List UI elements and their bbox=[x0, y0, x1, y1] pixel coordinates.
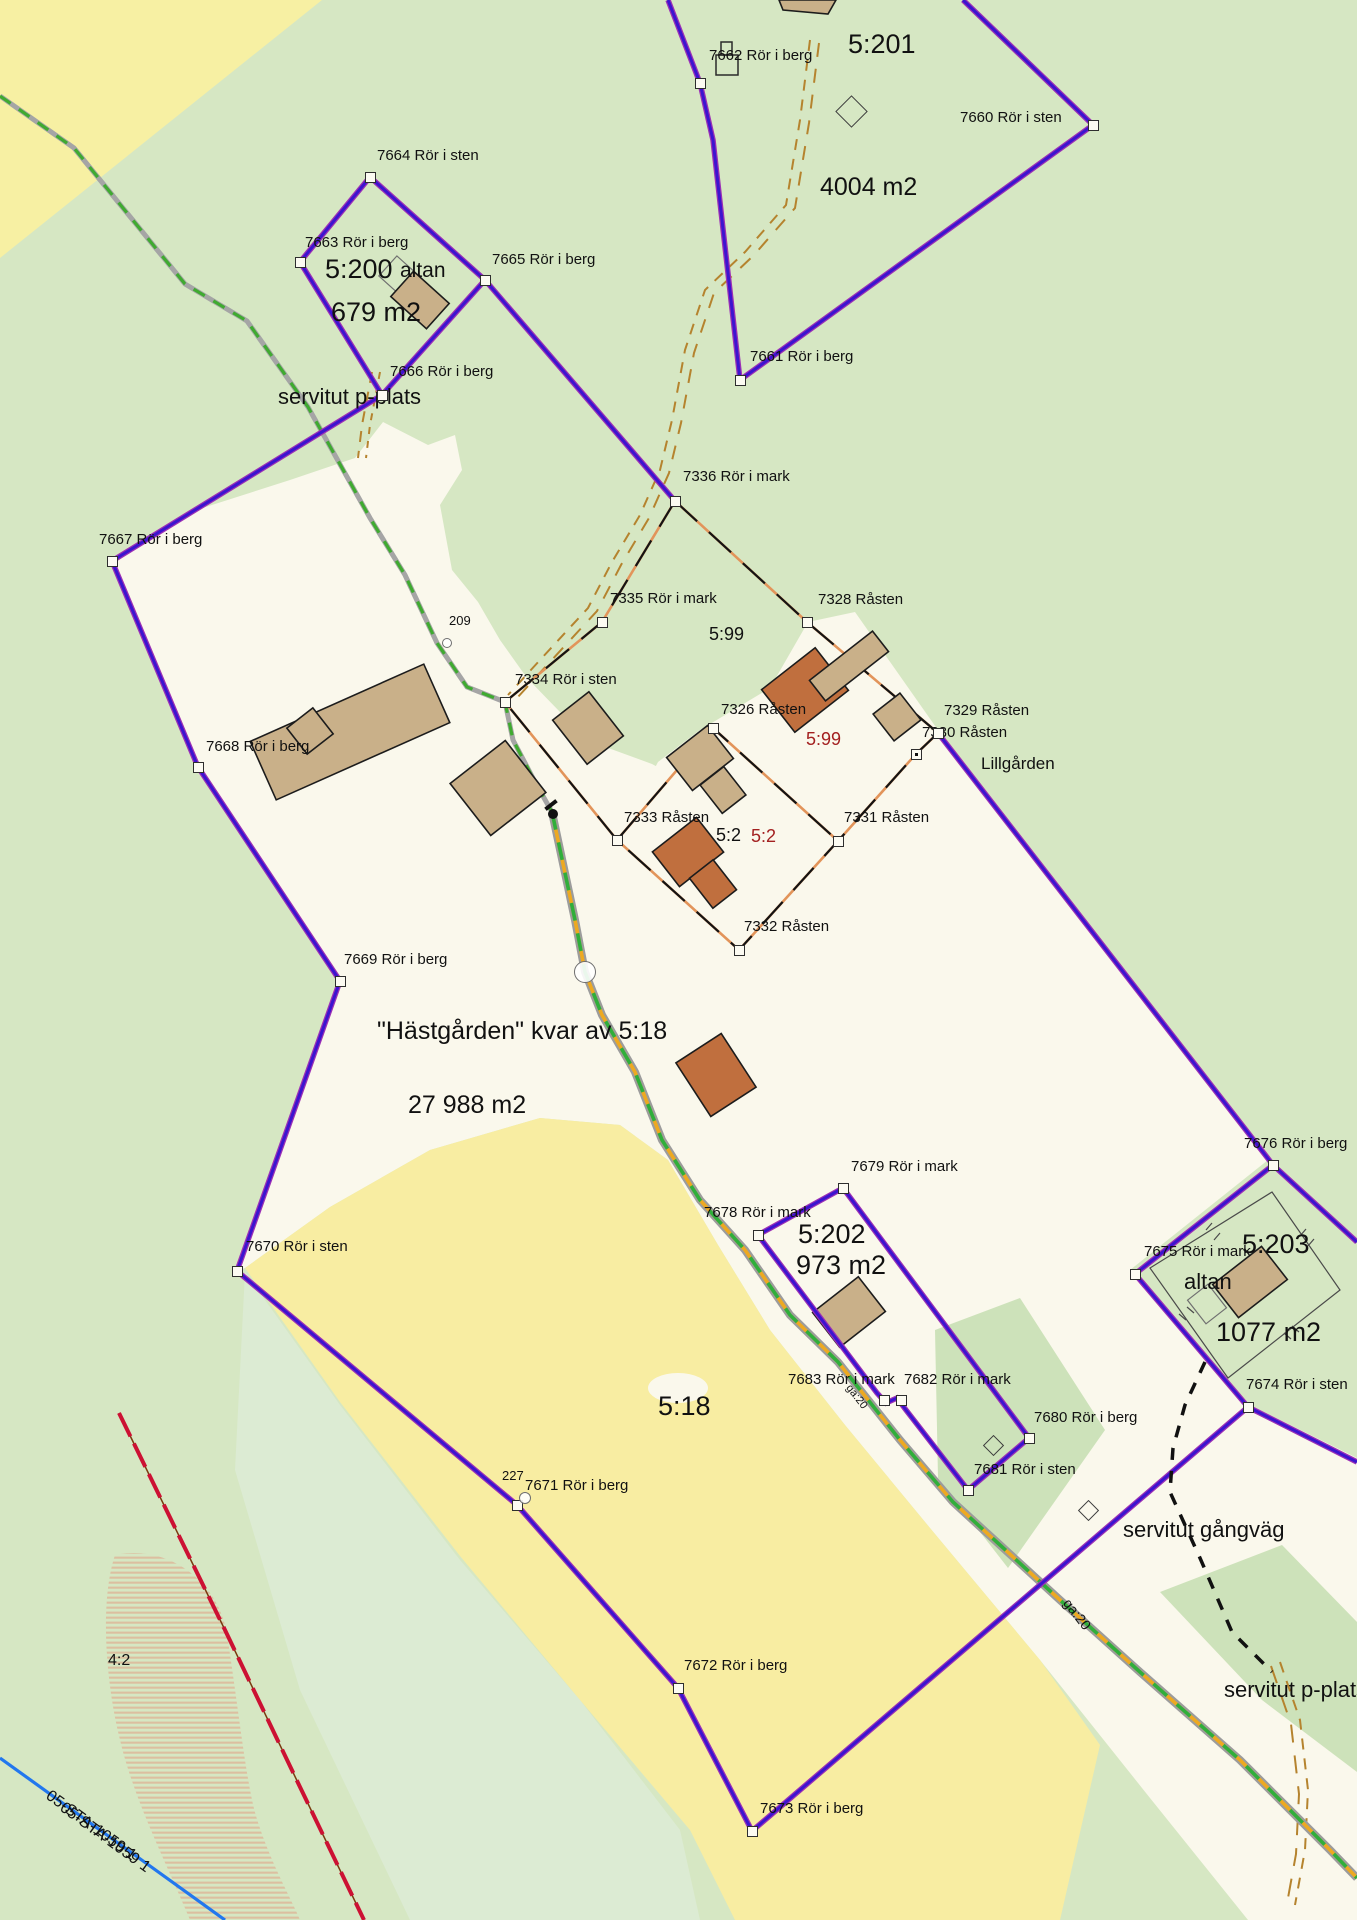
survey-marker-7675 bbox=[1130, 1269, 1141, 1280]
map-label-7664: 7664 Rör i sten bbox=[377, 148, 479, 164]
map-label-973: 973 m2 bbox=[796, 1251, 886, 1279]
survey-marker-7667 bbox=[107, 556, 118, 567]
survey-marker-7331 bbox=[833, 836, 844, 847]
map-label-7669: 7669 Rör i berg bbox=[344, 952, 447, 968]
survey-marker-7683 bbox=[879, 1395, 890, 1406]
map-label-4004: 4004 m2 bbox=[820, 174, 917, 200]
map-label-7331: 7331 Råsten bbox=[844, 810, 929, 826]
map-label-599-red: 5:99 bbox=[806, 730, 841, 749]
map-label-7673: 7673 Rör i berg bbox=[760, 1801, 863, 1817]
survey-marker-7336 bbox=[670, 496, 681, 507]
map-label-52-black: 5:2 bbox=[716, 826, 741, 845]
point-227 bbox=[519, 1492, 531, 1504]
diamond-7680 bbox=[982, 1434, 1003, 1455]
map-label-52-red: 5:2 bbox=[751, 827, 776, 846]
survey-marker-7661 bbox=[735, 375, 746, 386]
map-label-27988: 27 988 m2 bbox=[408, 1092, 526, 1118]
map-label-7335: 7335 Rör i mark bbox=[610, 591, 717, 607]
survey-marker-7663 bbox=[295, 257, 306, 268]
survey-marker-7682 bbox=[896, 1395, 907, 1406]
survey-marker-7670 bbox=[232, 1266, 243, 1277]
survey-marker-7335 bbox=[597, 617, 608, 628]
diamond-5201 bbox=[835, 95, 868, 128]
survey-marker-7326 bbox=[708, 723, 719, 734]
map-label-7333: 7333 Råsten bbox=[624, 810, 709, 826]
map-label-42: 4:2 bbox=[108, 1653, 130, 1670]
map-label-7670: 7670 Rör i sten bbox=[246, 1239, 348, 1255]
map-label-7660: 7660 Rör i sten bbox=[960, 110, 1062, 126]
map-label-lillgarden: Lillgården bbox=[981, 755, 1055, 773]
survey-marker-7660 bbox=[1088, 120, 1099, 131]
survey-marker-7673 bbox=[747, 1826, 758, 1837]
point-209 bbox=[442, 638, 452, 648]
survey-marker-7332 bbox=[734, 945, 745, 956]
map-label-7334: 7334 Rör i sten bbox=[515, 672, 617, 688]
map-label-7661: 7661 Rör i berg bbox=[750, 349, 853, 365]
map-feature-layer: 7662 Rör i berg5:2014004 m27660 Rör i st… bbox=[0, 0, 1357, 1920]
map-label-599-black: 5:99 bbox=[709, 625, 744, 644]
survey-marker-7669 bbox=[335, 976, 346, 987]
map-label-7667: 7667 Rör i berg bbox=[99, 532, 202, 548]
map-label-7332: 7332 Råsten bbox=[744, 919, 829, 935]
survey-marker-7680 bbox=[1024, 1433, 1035, 1444]
map-label-5202: 5:202 bbox=[798, 1220, 866, 1248]
map-label-altan-5203: altan bbox=[1184, 1270, 1232, 1293]
map-label-518: 5:18 bbox=[658, 1392, 711, 1420]
map-label-7336: 7336 Rör i mark bbox=[683, 469, 790, 485]
survey-marker-7328 bbox=[802, 617, 813, 628]
survey-marker-7664 bbox=[365, 172, 376, 183]
survey-marker-7329 bbox=[933, 728, 944, 739]
map-label-7680: 7680 Rör i berg bbox=[1034, 1410, 1137, 1426]
map-label-7663: 7663 Rör i berg bbox=[305, 235, 408, 251]
map-label-7329: 7329 Råsten bbox=[944, 703, 1029, 719]
survey-marker-7334 bbox=[500, 697, 511, 708]
map-label-7671: 7671 Rör i berg bbox=[525, 1478, 628, 1494]
survey-marker-7679 bbox=[838, 1183, 849, 1194]
map-label-7666: 7666 Rör i berg bbox=[390, 364, 493, 380]
survey-marker-7681 bbox=[963, 1485, 974, 1496]
map-label-7678: 7678 Rör i mark bbox=[704, 1205, 811, 1221]
survey-marker-7333 bbox=[612, 835, 623, 846]
survey-marker-7665 bbox=[480, 275, 491, 286]
survey-marker-7666 bbox=[377, 390, 388, 401]
map-label-7674: 7674 Rör i sten bbox=[1246, 1377, 1348, 1393]
map-label-7326: 7326 Råsten bbox=[721, 702, 806, 718]
map-label-227: 227 bbox=[502, 1469, 524, 1483]
map-label-7681: 7681 Rör i sten bbox=[974, 1462, 1076, 1478]
map-label-7683: 7683 Rör i mark bbox=[788, 1372, 895, 1388]
map-label-servitut-pplats-1: servitut p-plats bbox=[278, 385, 421, 408]
cadastral-map-page: { "map": { "title": "Fastighetskarta", "… bbox=[0, 0, 1357, 1920]
map-label-1077: 1077 m2 bbox=[1216, 1318, 1321, 1346]
map-label-7676: 7676 Rör i berg bbox=[1244, 1136, 1347, 1152]
survey-marker-7662 bbox=[695, 78, 706, 89]
map-label-5201: 5:201 bbox=[848, 30, 916, 58]
road-circle bbox=[574, 961, 596, 983]
map-label-5203: 5:203 bbox=[1242, 1230, 1310, 1258]
survey-marker-7674 bbox=[1243, 1402, 1254, 1413]
map-label-servitut-pplats-2: servitut p-plats bbox=[1224, 1678, 1357, 1701]
map-label-7668: 7668 Rör i berg bbox=[206, 739, 309, 755]
survey-marker-7672 bbox=[673, 1683, 684, 1694]
map-label-7675: 7675 Rör i mark bbox=[1144, 1244, 1251, 1260]
map-label-7682: 7682 Rör i mark bbox=[904, 1372, 1011, 1388]
map-label-209: 209 bbox=[449, 614, 471, 628]
map-label-hastgarden: "Hästgården" kvar av 5:18 bbox=[377, 1018, 667, 1044]
survey-marker-7330 bbox=[911, 749, 922, 760]
map-label-sta-2: 05-STA-1059 1 bbox=[56, 1800, 153, 1877]
survey-marker-7668 bbox=[193, 762, 204, 773]
map-label-7679: 7679 Rör i mark bbox=[851, 1159, 958, 1175]
map-label-7665: 7665 Rör i berg bbox=[492, 252, 595, 268]
map-label-7662: 7662 Rör i berg bbox=[709, 48, 812, 64]
map-label-679: 679 m2 bbox=[331, 298, 421, 326]
map-label-7328: 7328 Råsten bbox=[818, 592, 903, 608]
map-label-servitut-gangvag: servitut gångväg bbox=[1123, 1518, 1284, 1541]
survey-marker-7678 bbox=[753, 1230, 764, 1241]
survey-marker-7676 bbox=[1268, 1160, 1279, 1171]
map-label-altan-5200: altan bbox=[400, 260, 446, 282]
map-label-5200: 5:200 bbox=[325, 255, 393, 283]
diamond-gangvag bbox=[1077, 1499, 1098, 1520]
map-label-ga20-a: ga:20 bbox=[1060, 1596, 1093, 1633]
map-label-7672: 7672 Rör i berg bbox=[684, 1658, 787, 1674]
